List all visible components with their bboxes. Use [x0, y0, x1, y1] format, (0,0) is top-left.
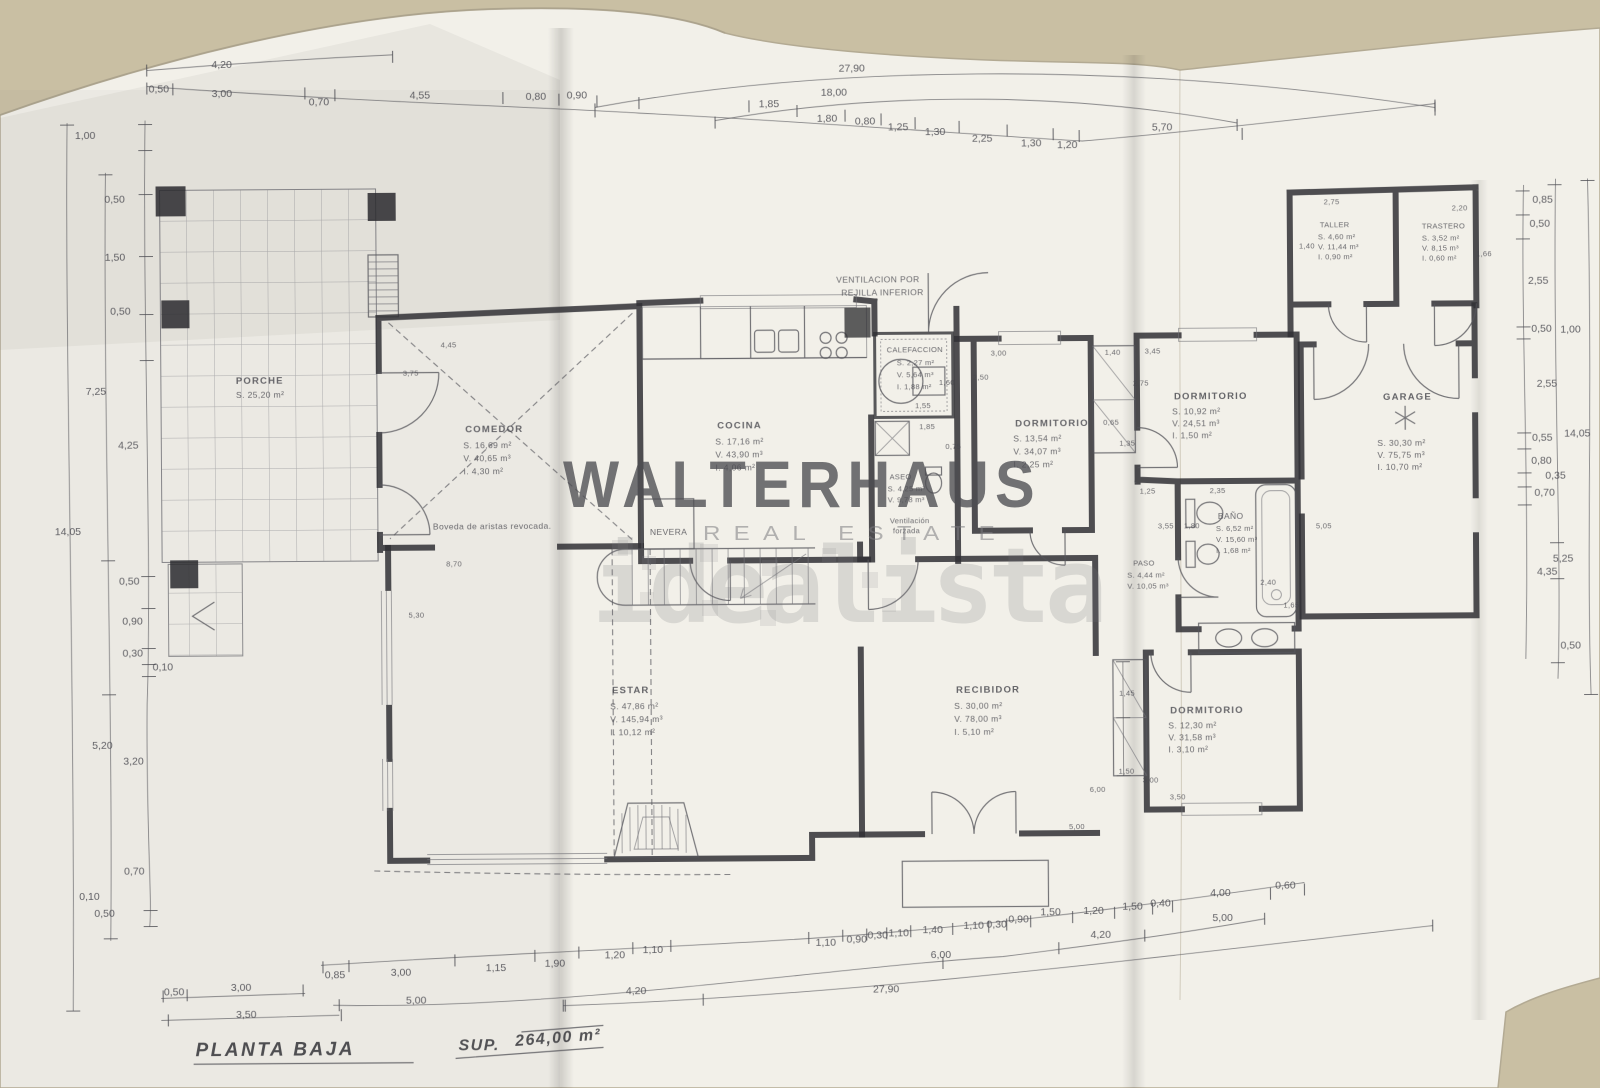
svg-text:5,00: 5,00 [406, 995, 427, 1007]
svg-text:V. 31,58 m³: V. 31,58 m³ [1168, 732, 1216, 742]
ventilation-note: VENTILACION POR [836, 274, 920, 285]
svg-text:S. 13,54 m²: S. 13,54 m² [1013, 433, 1061, 443]
photo-of-folded-floor-plan: PORCHE S. 25,20 m² COMEDOR S. 16,69 m² V… [0, 0, 1600, 1088]
svg-text:1,20: 1,20 [1083, 905, 1104, 917]
svg-text:1,40: 1,40 [1299, 241, 1315, 250]
svg-text:I. 10,70 m²: I. 10,70 m² [1377, 462, 1422, 472]
svg-text:14,05: 14,05 [55, 526, 82, 538]
svg-text:0,60: 0,60 [1275, 880, 1296, 892]
svg-text:1,60: 1,60 [939, 378, 955, 387]
svg-text:1,40: 1,40 [922, 924, 943, 936]
svg-text:V. 8,15 m³: V. 8,15 m³ [1422, 243, 1459, 252]
svg-text:1,80: 1,80 [817, 113, 838, 125]
svg-text:0,50: 0,50 [1530, 218, 1551, 230]
svg-text:0,50: 0,50 [164, 986, 185, 998]
svg-text:1,65: 1,65 [1283, 601, 1299, 610]
svg-text:1,20: 1,20 [1057, 139, 1078, 151]
room-label-bano: BAÑO [1218, 511, 1244, 521]
svg-text:0,90: 0,90 [567, 89, 588, 101]
svg-text:1,00: 1,00 [1560, 324, 1581, 336]
svg-text:S. 4,44 m²: S. 4,44 m² [1127, 570, 1165, 579]
svg-text:1,15: 1,15 [486, 962, 507, 974]
svg-text:3,50: 3,50 [236, 1009, 257, 1021]
svg-text:1,00: 1,00 [75, 130, 96, 142]
svg-text:0,80: 0,80 [526, 91, 547, 103]
svg-text:4,45: 4,45 [441, 340, 457, 349]
svg-text:1,35: 1,35 [1119, 439, 1135, 448]
svg-text:3,00: 3,00 [391, 967, 412, 979]
svg-text:1,55: 1,55 [915, 401, 931, 410]
svg-text:2,75: 2,75 [1133, 379, 1149, 388]
svg-text:1,10: 1,10 [643, 944, 664, 956]
svg-text:2,75: 2,75 [1324, 197, 1340, 206]
svg-text:I. 4,30 m²: I. 4,30 m² [463, 466, 503, 476]
svg-text:0,80: 0,80 [1531, 455, 1552, 467]
svg-text:V. 11,44 m³: V. 11,44 m³ [1318, 242, 1359, 251]
svg-text:5,00: 5,00 [1069, 822, 1085, 831]
svg-text:S. 6,52 m²: S. 6,52 m² [1216, 524, 1254, 533]
svg-text:1,90: 1,90 [545, 958, 566, 970]
svg-text:2,55: 2,55 [1537, 378, 1558, 390]
svg-text:4,25: 4,25 [118, 440, 139, 452]
svg-text:V. 10,05 m³: V. 10,05 m³ [1127, 581, 1169, 590]
svg-text:5,00: 5,00 [1212, 912, 1233, 924]
svg-text:0,30: 0,30 [986, 919, 1007, 931]
svg-text:4,20: 4,20 [1091, 929, 1112, 941]
svg-text:V. 15,60 m³: V. 15,60 m³ [1216, 535, 1258, 544]
svg-text:18,00: 18,00 [821, 87, 848, 99]
svg-text:I. 1,88 m²: I. 1,88 m² [897, 382, 932, 391]
svg-text:0,30: 0,30 [123, 648, 144, 660]
svg-text:6,00: 6,00 [931, 949, 952, 961]
svg-text:S. 47,86 m²: S. 47,86 m² [610, 701, 658, 711]
svg-text:V. 145,94 m³: V. 145,94 m³ [610, 714, 663, 724]
svg-text:0,40: 0,40 [1150, 897, 1171, 909]
svg-text:4,00: 4,00 [1210, 887, 1231, 899]
svg-text:S. 17,16 m²: S. 17,16 m² [715, 436, 763, 446]
vent-grille [844, 308, 870, 338]
svg-text:4,35: 4,35 [1537, 566, 1558, 578]
svg-text:1,50: 1,50 [105, 252, 126, 264]
svg-text:2,35: 2,35 [1210, 486, 1226, 495]
svg-text:3,00: 3,00 [1143, 776, 1159, 785]
svg-text:5,30: 5,30 [408, 611, 424, 620]
svg-text:3,45: 3,45 [1145, 346, 1161, 355]
svg-text:1,10: 1,10 [963, 920, 984, 932]
svg-text:1,10: 1,10 [816, 937, 837, 949]
svg-text:0,90: 0,90 [1008, 913, 1029, 925]
svg-text:1,25: 1,25 [888, 121, 909, 133]
svg-text:0,90: 0,90 [847, 934, 868, 946]
svg-text:1,50: 1,50 [1122, 901, 1143, 913]
svg-text:S. 10,92 m²: S. 10,92 m² [1172, 406, 1220, 416]
svg-text:2,55: 2,55 [1528, 275, 1549, 287]
plan-sup-label: SUP. [458, 1037, 499, 1054]
svg-text:2,40: 2,40 [1260, 578, 1276, 587]
svg-text:1,40: 1,40 [1105, 348, 1121, 357]
svg-text:1,50: 1,50 [1119, 767, 1135, 776]
svg-text:0,50: 0,50 [110, 306, 131, 318]
svg-text:0,50: 0,50 [94, 908, 115, 920]
svg-text:0,70: 0,70 [1534, 487, 1555, 499]
svg-text:0,10: 0,10 [79, 891, 100, 903]
svg-text:1,45: 1,45 [1119, 689, 1135, 698]
svg-text:REJILLA INFERIOR: REJILLA INFERIOR [841, 287, 924, 298]
svg-text:4,20: 4,20 [211, 59, 232, 71]
svg-text:0,65: 0,65 [1103, 418, 1119, 427]
svg-text:S. 3,52 m²: S. 3,52 m² [1422, 233, 1460, 242]
room-label-garage: GARAGE [1383, 392, 1432, 403]
svg-text:I. 5,10 m²: I. 5,10 m² [954, 727, 994, 737]
svg-text:5,05: 5,05 [1316, 521, 1332, 530]
svg-text:6,00: 6,00 [1090, 785, 1106, 794]
svg-text:5,70: 5,70 [1152, 121, 1173, 133]
vault-note: Boveda de aristas revocada. [433, 521, 552, 532]
svg-text:5,25: 5,25 [1553, 553, 1574, 565]
svg-text:14,05: 14,05 [1564, 427, 1591, 439]
svg-text:S. 2,27 m²: S. 2,27 m² [897, 358, 935, 367]
room-label-cocina: COCINA [717, 420, 762, 431]
svg-text:I. 0,90 m²: I. 0,90 m² [1318, 252, 1353, 261]
floor-plan-svg: PORCHE S. 25,20 m² COMEDOR S. 16,69 m² V… [0, 0, 1600, 1088]
svg-text:4,20: 4,20 [626, 985, 647, 997]
svg-text:V. 75,75 m³: V. 75,75 m³ [1377, 450, 1425, 460]
svg-text:3,00: 3,00 [231, 982, 252, 994]
svg-text:1,50: 1,50 [1040, 906, 1061, 918]
room-label-porche: PORCHE [236, 376, 284, 387]
svg-text:S. 12,30 m²: S. 12,30 m² [1168, 720, 1216, 730]
svg-text:3,75: 3,75 [403, 369, 419, 378]
svg-text:3,00: 3,00 [212, 88, 233, 100]
room-label-calefaccion: CALEFACCION [887, 345, 943, 354]
svg-text:1,80: 1,80 [1184, 521, 1200, 530]
svg-text:1,85: 1,85 [759, 98, 780, 110]
svg-text:0,50: 0,50 [1531, 323, 1552, 335]
svg-text:0,70: 0,70 [309, 96, 330, 108]
room-label-dormitorio2: DORMITORIO [1174, 391, 1248, 403]
svg-text:0,10: 0,10 [153, 661, 174, 673]
svg-text:1,30: 1,30 [1021, 137, 1042, 149]
svg-text:3,00: 3,00 [991, 349, 1007, 358]
room-label-dormitorio1: DORMITORIO [1015, 418, 1089, 430]
room-label-dormitorio3: DORMITORIO [1170, 705, 1244, 717]
svg-text:0,70: 0,70 [124, 866, 145, 878]
svg-text:I. 10,12 m²: I. 10,12 m² [610, 727, 655, 737]
svg-text:0,90: 0,90 [122, 616, 143, 628]
svg-text:0,50: 0,50 [119, 576, 140, 588]
svg-text:5,20: 5,20 [92, 740, 113, 752]
svg-text:27,90: 27,90 [873, 983, 900, 995]
svg-text:V. 78,00 m³: V. 78,00 m³ [954, 714, 1002, 724]
svg-text:0,85: 0,85 [1532, 194, 1553, 206]
svg-text:0,50: 0,50 [149, 83, 170, 95]
svg-text:V. 24,51 m³: V. 24,51 m³ [1172, 418, 1220, 428]
svg-text:8,70: 8,70 [446, 559, 462, 568]
svg-text:7,25: 7,25 [86, 386, 107, 398]
svg-text:I. 3,10 m²: I. 3,10 m² [1168, 744, 1208, 754]
svg-text:4,55: 4,55 [410, 90, 431, 102]
svg-text:S. 30,30 m²: S. 30,30 m² [1377, 438, 1425, 448]
room-stat: S. 25,20 m² [236, 390, 284, 400]
svg-text:0,80: 0,80 [855, 115, 876, 127]
svg-text:I. 0,60 m²: I. 0,60 m² [1422, 253, 1457, 262]
svg-text:27,90: 27,90 [839, 63, 866, 75]
svg-text:0,55: 0,55 [1532, 432, 1553, 444]
svg-text:S. 30,00 m²: S. 30,00 m² [954, 701, 1002, 711]
svg-text:1,85: 1,85 [919, 422, 935, 431]
brand-wordmark: WALTERHAUS [563, 447, 1041, 521]
plan-title: PLANTA BAJA [195, 1039, 355, 1061]
svg-text:1,25: 1,25 [1140, 487, 1156, 496]
svg-text:3,55: 3,55 [1158, 521, 1174, 530]
svg-text:S. 16,69 m²: S. 16,69 m² [463, 440, 511, 450]
svg-text:V. 5,64 m³: V. 5,64 m³ [897, 370, 934, 379]
svg-text:1,66: 1,66 [1476, 249, 1492, 258]
room-label-trastero: TRASTERO [1422, 221, 1465, 230]
svg-text:0,50: 0,50 [104, 194, 125, 206]
svg-text:3,50: 3,50 [1170, 792, 1186, 801]
svg-text:0,50: 0,50 [1560, 640, 1581, 652]
svg-text:2,50: 2,50 [973, 373, 989, 382]
room-label-recibidor: RECIBIDOR [956, 684, 1020, 695]
svg-text:3,20: 3,20 [123, 756, 144, 768]
svg-text:1,10: 1,10 [888, 927, 909, 939]
svg-text:1,30: 1,30 [925, 126, 946, 138]
svg-text:S. 4,60 m²: S. 4,60 m² [1318, 232, 1356, 241]
room-label-comedor: COMEDOR [465, 424, 523, 435]
svg-text:0,35: 0,35 [1545, 470, 1566, 482]
svg-text:I. 1,50 m²: I. 1,50 m² [1172, 430, 1212, 440]
brand-tagline: REAL ESTATE [703, 523, 1008, 545]
room-label-paso: PASO [1133, 559, 1155, 568]
room-label-estar: ESTAR [612, 685, 650, 696]
svg-text:2,20: 2,20 [1452, 203, 1468, 212]
svg-text:I. 1,68 m²: I. 1,68 m² [1216, 546, 1251, 555]
room-label-taller: TALLER [1320, 220, 1350, 229]
svg-text:2,25: 2,25 [972, 133, 993, 145]
svg-text:1,20: 1,20 [605, 949, 626, 961]
svg-text:0,85: 0,85 [325, 969, 346, 981]
svg-text:0,30: 0,30 [868, 929, 889, 941]
svg-text:V. 40,65 m³: V. 40,65 m³ [463, 453, 511, 463]
